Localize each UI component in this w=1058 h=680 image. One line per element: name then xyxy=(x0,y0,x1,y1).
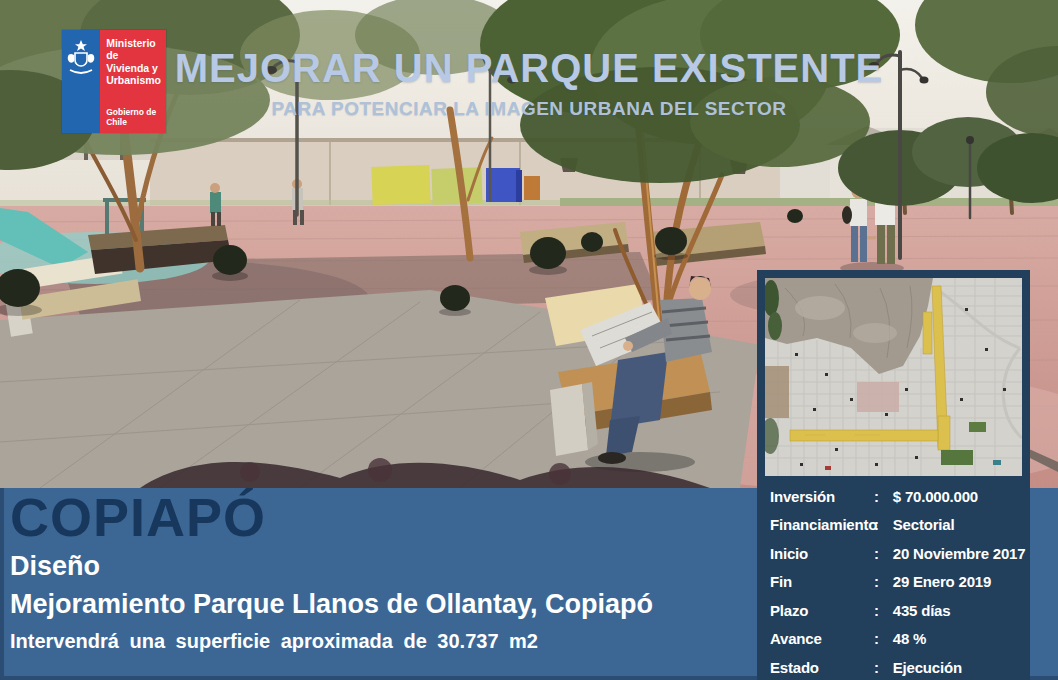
info-value: 48 % xyxy=(893,630,926,647)
info-label: Estado xyxy=(770,659,874,676)
logo-blue-field xyxy=(62,30,100,133)
info-label: Inversión xyxy=(770,488,874,505)
presentation-slide: Ministerio de Vivienda y Urbanismo Gobie… xyxy=(0,0,1058,680)
info-label: Fin xyxy=(770,573,874,590)
info-colon: : xyxy=(874,488,879,505)
info-colon: : xyxy=(874,602,879,619)
project-info-panel: Inversión:$ 70.000.000Financiamiento:Sec… xyxy=(757,270,1030,680)
info-label: Financiamiento xyxy=(770,516,874,533)
info-row: Avance:48 % xyxy=(770,625,1020,654)
info-row: Financiamiento:Sectorial xyxy=(770,511,1020,540)
map-salmon-block xyxy=(857,382,899,412)
info-row: Inversión:$ 70.000.000 xyxy=(770,482,1020,511)
info-value: Sectorial xyxy=(893,516,955,533)
logo-government-text: Gobierno de Chile xyxy=(106,107,161,127)
info-colon: : xyxy=(874,630,879,647)
info-row: Estado:Ejecución xyxy=(770,653,1020,680)
info-colon: : xyxy=(874,573,879,590)
info-row: Inicio:20 Noviembre 2017 xyxy=(770,539,1020,568)
logo-ministry-text: Ministerio de Vivienda y Urbanismo xyxy=(106,37,161,87)
info-value: 435 días xyxy=(893,602,951,619)
info-value: 20 Noviembre 2017 xyxy=(893,545,1026,562)
info-row: Plazo:435 días xyxy=(770,596,1020,625)
aerial-map xyxy=(765,278,1022,476)
ministry-logo: Ministerio de Vivienda y Urbanismo Gobie… xyxy=(62,30,166,133)
info-value: 29 Enero 2019 xyxy=(893,573,991,590)
info-label: Avance xyxy=(770,630,874,647)
info-colon: : xyxy=(874,545,879,562)
map-green-small xyxy=(969,422,986,432)
info-colon: : xyxy=(874,516,879,533)
info-label: Plazo xyxy=(770,602,874,619)
info-rows: Inversión:$ 70.000.000Financiamiento:Sec… xyxy=(765,482,1022,680)
info-value: $ 70.000.000 xyxy=(893,488,978,505)
map-teal-speck xyxy=(993,460,1001,465)
info-value: Ejecución xyxy=(893,659,962,676)
info-colon: : xyxy=(874,659,879,676)
map-red-speck xyxy=(825,466,831,470)
info-row: Fin:29 Enero 2019 xyxy=(770,568,1020,597)
map-ridge-light2 xyxy=(853,323,897,343)
chile-coat-of-arms-icon xyxy=(64,38,98,82)
map-ridge-light xyxy=(795,296,845,320)
logo-red-field: Ministerio de Vivienda y Urbanismo Gobie… xyxy=(100,30,166,133)
map-park-green xyxy=(941,450,973,465)
info-label: Inicio xyxy=(770,545,874,562)
